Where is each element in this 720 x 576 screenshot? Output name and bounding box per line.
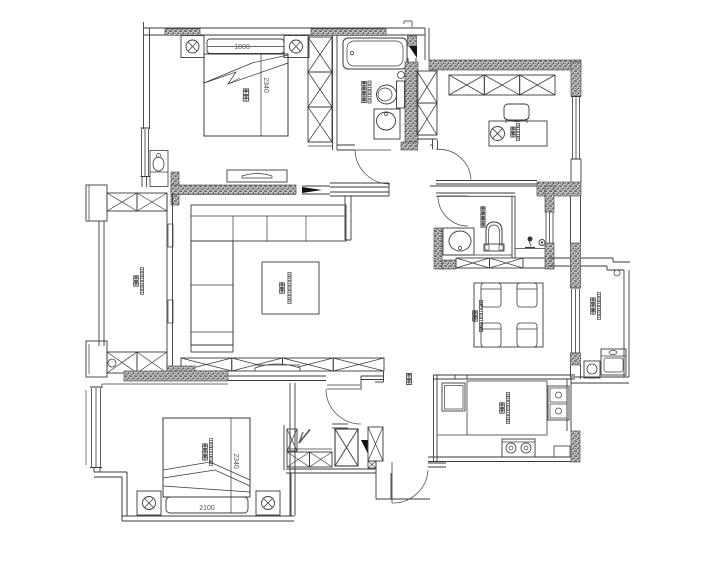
svg-text:2340: 2340 xyxy=(232,453,239,469)
svg-text:2100: 2100 xyxy=(199,505,215,512)
svg-text:2340: 2340 xyxy=(262,77,269,93)
svg-text:1800: 1800 xyxy=(234,44,250,51)
